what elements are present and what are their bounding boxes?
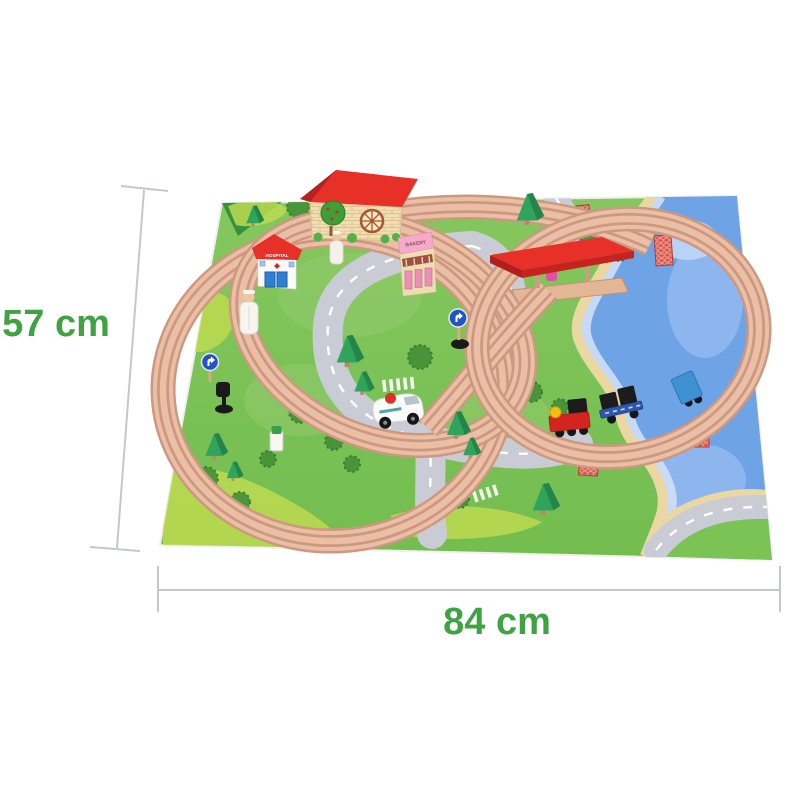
hospital-window	[260, 261, 265, 266]
painted-shrub	[381, 235, 390, 244]
station-roof-right	[310, 170, 418, 207]
painted-shrub	[347, 233, 357, 243]
station-building	[300, 170, 418, 244]
hospital-door	[277, 272, 287, 287]
height-dimension-line	[117, 190, 144, 548]
height-label: 57 cm	[2, 303, 110, 345]
brick-pillar	[654, 235, 673, 266]
painted-shrub	[314, 233, 323, 242]
hospital-sign-label: HOSPITAL	[266, 253, 289, 258]
height-dimension: 57 cm	[2, 186, 168, 551]
width-label: 84 cm	[443, 601, 551, 643]
product-photo-wooden-train-set: HOSPITAL BAKERY	[0, 0, 800, 800]
bakery-building: BAKERY	[398, 232, 436, 296]
bakery-door	[405, 271, 412, 289]
bakery-door	[425, 268, 432, 286]
painted-wagon-wheel	[361, 210, 383, 232]
hospital-window	[289, 262, 294, 267]
trackside-signal-hut	[270, 426, 283, 451]
bakery-door	[415, 270, 422, 288]
height-tick-bottom	[90, 547, 140, 551]
width-dimension: 84 cm	[158, 566, 780, 643]
train-set-scene: HOSPITAL BAKERY	[0, 0, 800, 800]
hospital-door	[265, 272, 275, 287]
engine-dome	[549, 406, 561, 418]
